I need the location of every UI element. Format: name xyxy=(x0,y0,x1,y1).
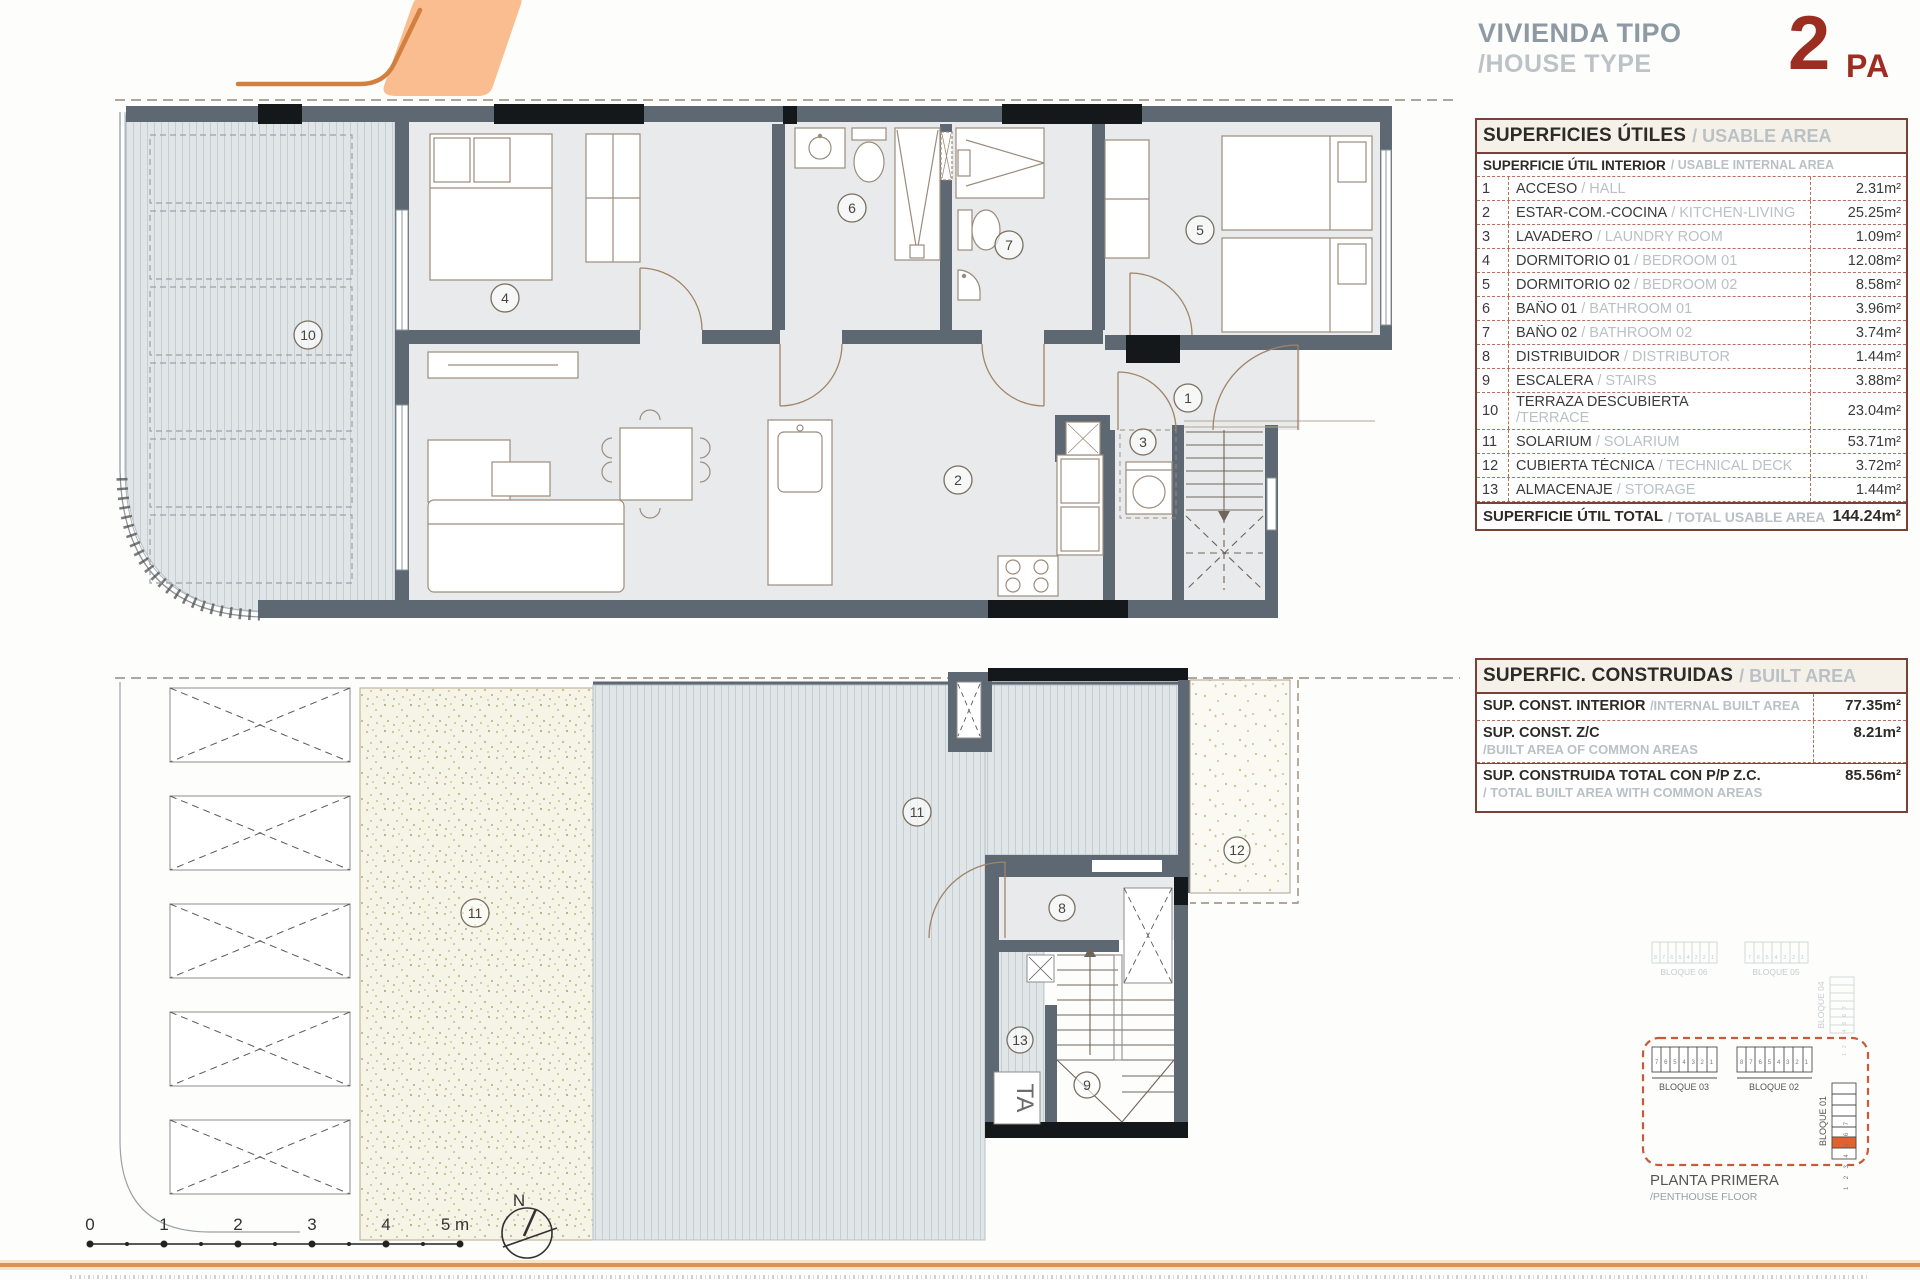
lintel xyxy=(1092,860,1162,872)
keyplan-bloque02-cells: 8 7 6 5 4 3 2 1 xyxy=(1740,1060,1809,1066)
keyplan-bloque04-label: BLOQUE 04 xyxy=(1816,981,1826,1029)
table-row: 5 DORMITORIO 02/ BEDROOM 02 8.58m² xyxy=(1477,273,1906,297)
row-num: 12 xyxy=(1477,454,1509,477)
room-badge-techdeck: 12 xyxy=(1229,842,1245,858)
scale-label-3: 3 xyxy=(307,1215,316,1234)
table-row: 12 CUBIERTA TÉCNICA/ TECHNICAL DECK 3.72… xyxy=(1477,454,1906,478)
room-badge-bedroom1: 4 xyxy=(501,290,509,306)
total-en: / TOTAL USABLE AREA xyxy=(1668,509,1825,525)
storage-ta: TA xyxy=(994,1072,1040,1124)
row-num: 3 xyxy=(1477,225,1509,248)
row-num: 7 xyxy=(1477,321,1509,344)
table-row: 2 ESTAR-COM.-COCINA/ KITCHEN-LIVING 25.2… xyxy=(1477,201,1906,225)
scale-label-4: 4 xyxy=(381,1215,390,1234)
built-area-table: SUPERFIC. CONSTRUIDAS / BUILT AREA SUP. … xyxy=(1475,658,1908,813)
keyplan-bloque05-cells: 7 6 5 4 3 2 1 xyxy=(1748,955,1804,961)
room-en: /TERRACE xyxy=(1516,411,1810,427)
floorplan-main-level: 10 4 6 7 5 2 1 3 xyxy=(120,104,1392,618)
room-en: / SOLARIUM xyxy=(1596,434,1680,450)
usable-total-row: SUPERFICIE ÚTIL TOTAL / TOTAL USABLE ARE… xyxy=(1477,502,1906,529)
row-num: 9 xyxy=(1477,369,1509,392)
keyplan-bloque02-label: BLOQUE 02 xyxy=(1749,1082,1799,1092)
logo xyxy=(238,0,522,96)
table-row: 7 BAÑO 02/ BATHROOM 02 3.74m² xyxy=(1477,321,1906,345)
clipped-disclaimer-text xyxy=(70,1275,1870,1279)
room-es: DORMITORIO 01 xyxy=(1516,253,1630,269)
room-badge-hall: 1 xyxy=(1184,390,1192,406)
built-value: 77.35m² xyxy=(1845,697,1901,714)
footer-rule xyxy=(0,1260,1920,1270)
room-en: / BEDROOM 01 xyxy=(1634,253,1737,269)
table-row: 3 LAVADERO/ LAUNDRY ROOM 1.09m² xyxy=(1477,225,1906,249)
built-es: SUP. CONST. Z/C xyxy=(1483,725,1600,741)
table-row: 13 ALMACENAJE/ STORAGE 1.44m² xyxy=(1477,478,1906,502)
table-row: 1 ACCESO/ HALL 2.31m² xyxy=(1477,177,1906,201)
keyplan-bloque01-label: BLOQUE 01 xyxy=(1818,1096,1828,1146)
room-badge-bedroom2: 5 xyxy=(1196,222,1204,238)
row-value: 8.58m² xyxy=(1810,273,1906,296)
built-es: SUP. CONST. INTERIOR xyxy=(1483,698,1645,714)
usable-sub-es: SUPERFICIE ÚTIL INTERIOR xyxy=(1483,158,1666,173)
row-num: 10 xyxy=(1477,393,1509,429)
scale-label-0: 0 xyxy=(85,1215,94,1234)
keyplan-bloque04-cells: 1 2 3 4 5 6 7 xyxy=(1842,1006,1848,1056)
usable-area-subheader: SUPERFICIE ÚTIL INTERIOR / USABLE INTERN… xyxy=(1477,154,1906,177)
keyplan-bloque05-label: BLOQUE 05 xyxy=(1752,967,1800,977)
room-es: BAÑO 02 xyxy=(1516,325,1577,341)
floorplan-solarium-level: TA 11 11 8 9 13 12 xyxy=(120,668,1298,1240)
room-en: / BEDROOM 02 xyxy=(1634,277,1737,293)
built-total-value: 85.56m² xyxy=(1845,767,1901,784)
usable-area-header: SUPERFICIES ÚTILES / USABLE AREA xyxy=(1477,120,1906,154)
room-badge-bath2: 7 xyxy=(1005,237,1013,253)
built-total-row: SUP. CONSTRUIDA TOTAL CON P/P Z.C. / TOT… xyxy=(1477,763,1906,811)
row-num: 4 xyxy=(1477,249,1509,272)
table-row: 4 DORMITORIO 01/ BEDROOM 01 12.08m² xyxy=(1477,249,1906,273)
room-badge-storage: 13 xyxy=(1012,1032,1028,1048)
built-row: SUP. CONST. Z/C /BUILT AREA OF COMMON AR… xyxy=(1477,721,1906,763)
table-row: 11 SOLARIUM/ SOLARIUM 53.71m² xyxy=(1477,430,1906,454)
room-en: / STORAGE xyxy=(1617,482,1696,498)
row-value: 1.09m² xyxy=(1810,225,1906,248)
built-en: /BUILT AREA OF COMMON AREAS xyxy=(1483,742,1806,757)
row-value: 3.88m² xyxy=(1810,369,1906,392)
row-value: 3.72m² xyxy=(1810,454,1906,477)
row-num: 2 xyxy=(1477,201,1509,224)
room-es: CUBIERTA TÉCNICA xyxy=(1516,458,1655,474)
room-es: DORMITORIO 02 xyxy=(1516,277,1630,293)
room-en: / BATHROOM 02 xyxy=(1581,325,1692,341)
room-badge-laundry: 3 xyxy=(1139,434,1147,450)
north-label: N xyxy=(513,1191,525,1210)
room-en: / STAIRS xyxy=(1597,373,1656,389)
usable-sub-en: / USABLE INTERNAL AREA xyxy=(1671,158,1834,172)
row-value: 3.96m² xyxy=(1810,297,1906,320)
row-num: 6 xyxy=(1477,297,1509,320)
table-row: 6 BAÑO 01/ BATHROOM 01 3.96m² xyxy=(1477,297,1906,321)
row-value: 1.44m² xyxy=(1810,478,1906,501)
keyplan-bloque06-label: BLOQUE 06 xyxy=(1660,967,1708,977)
room-es: SOLARIUM xyxy=(1516,434,1592,450)
key-plan: BLOQUE 06 BLOQUE 05 BLOQUE 04 8 7 6 5 4 … xyxy=(1643,942,1868,1203)
built-title-en: / BUILT AREA xyxy=(1739,666,1856,687)
table-row: 9 ESCALERA/ STAIRS 3.88m² xyxy=(1477,369,1906,393)
sheet-title-en: /HOUSE TYPE xyxy=(1478,50,1652,79)
built-en: /INTERNAL BUILT AREA xyxy=(1650,698,1800,713)
built-total-en: / TOTAL BUILT AREA WITH COMMON AREAS xyxy=(1483,785,1900,800)
built-area-header: SUPERFIC. CONSTRUIDAS / BUILT AREA xyxy=(1477,660,1906,694)
room-badge-distributor: 8 xyxy=(1058,900,1066,916)
room-en: / HALL xyxy=(1581,181,1625,197)
room-es: DISTRIBUIDOR xyxy=(1516,349,1620,365)
row-num: 11 xyxy=(1477,430,1509,453)
room-badge-stairs: 9 xyxy=(1083,1077,1091,1093)
row-num: 8 xyxy=(1477,345,1509,368)
solarium-gravel xyxy=(360,688,593,1240)
room-es: ALMACENAJE xyxy=(1516,482,1613,498)
scale-label-1: 1 xyxy=(159,1215,168,1234)
total-es: SUPERFICIE ÚTIL TOTAL xyxy=(1483,508,1663,525)
room-en: / KITCHEN-LIVING xyxy=(1671,205,1795,221)
table-row: 10 TERRAZA DESCUBIERTA/TERRACE 23.04m² xyxy=(1477,393,1906,430)
row-value: 1.44m² xyxy=(1810,345,1906,368)
room-badge-bath1: 6 xyxy=(848,200,856,216)
table-row: 8 DISTRIBUIDOR/ DISTRIBUTOR 1.44m² xyxy=(1477,345,1906,369)
room-en: / BATHROOM 01 xyxy=(1581,301,1692,317)
usable-title-en: / USABLE AREA xyxy=(1692,126,1831,147)
row-value: 3.74m² xyxy=(1810,321,1906,344)
keyplan-caption-en: /PENTHOUSE FLOOR xyxy=(1650,1191,1758,1203)
row-value: 12.08m² xyxy=(1810,249,1906,272)
storage-tag-label: TA xyxy=(1011,1084,1038,1113)
sheet-title: VIVIENDA TIPO xyxy=(1478,18,1682,49)
keyplan-bloque03-label: BLOQUE 03 xyxy=(1659,1082,1709,1092)
row-value: 53.71m² xyxy=(1810,430,1906,453)
built-title-es: SUPERFIC. CONSTRUIDAS xyxy=(1483,665,1733,687)
row-num: 1 xyxy=(1477,177,1509,200)
built-row: SUP. CONST. INTERIOR /INTERNAL BUILT ARE… xyxy=(1477,694,1906,721)
room-es: ESCALERA xyxy=(1516,373,1593,389)
room-en: / DISTRIBUTOR xyxy=(1624,349,1730,365)
row-value: 23.04m² xyxy=(1810,393,1906,429)
keyplan-bloque06-cells: 8 7 6 5 4 3 2 1 xyxy=(1654,955,1714,961)
keyplan-caption: PLANTA PRIMERA xyxy=(1650,1172,1779,1189)
usable-area-table: SUPERFICIES ÚTILES / USABLE AREA SUPERFI… xyxy=(1475,118,1908,531)
room-es: LAVADERO xyxy=(1516,229,1593,245)
bedroom1-furniture xyxy=(430,134,640,280)
room-badge-living: 2 xyxy=(954,472,962,488)
row-value: 2.31m² xyxy=(1810,177,1906,200)
built-value: 8.21m² xyxy=(1853,724,1901,741)
house-type-suffix: PA xyxy=(1846,50,1890,82)
house-type-number: 2 xyxy=(1788,6,1830,82)
total-value: 144.24m² xyxy=(1833,508,1902,526)
room-en: / TECHNICAL DECK xyxy=(1659,458,1793,474)
row-value: 25.25m² xyxy=(1810,201,1906,224)
solarium-deck xyxy=(593,685,985,1240)
room-badge-terrace: 10 xyxy=(300,327,316,343)
row-num: 5 xyxy=(1477,273,1509,296)
usable-title-es: SUPERFICIES ÚTILES xyxy=(1483,125,1686,147)
scale-label-5: 5 m xyxy=(441,1215,469,1234)
pergola-boxes xyxy=(170,688,350,1194)
room-badge-solarium-b: 11 xyxy=(910,804,925,820)
room-es: TERRAZA DESCUBIERTA xyxy=(1516,395,1689,410)
room-es: BAÑO 01 xyxy=(1516,301,1577,317)
row-num: 13 xyxy=(1477,478,1509,501)
room-badge-solarium-a: 11 xyxy=(468,905,483,921)
scale-label-2: 2 xyxy=(233,1215,242,1234)
room-es: ESTAR-COM.-COCINA xyxy=(1516,205,1667,221)
room-es: ACCESO xyxy=(1516,181,1577,197)
roof-vent xyxy=(948,672,992,752)
plan-sheet: 10 4 6 7 5 2 1 3 xyxy=(0,0,1920,1280)
room-en: / LAUNDRY ROOM xyxy=(1597,229,1723,245)
built-total-es: SUP. CONSTRUIDA TOTAL CON P/P Z.C. xyxy=(1483,768,1761,784)
